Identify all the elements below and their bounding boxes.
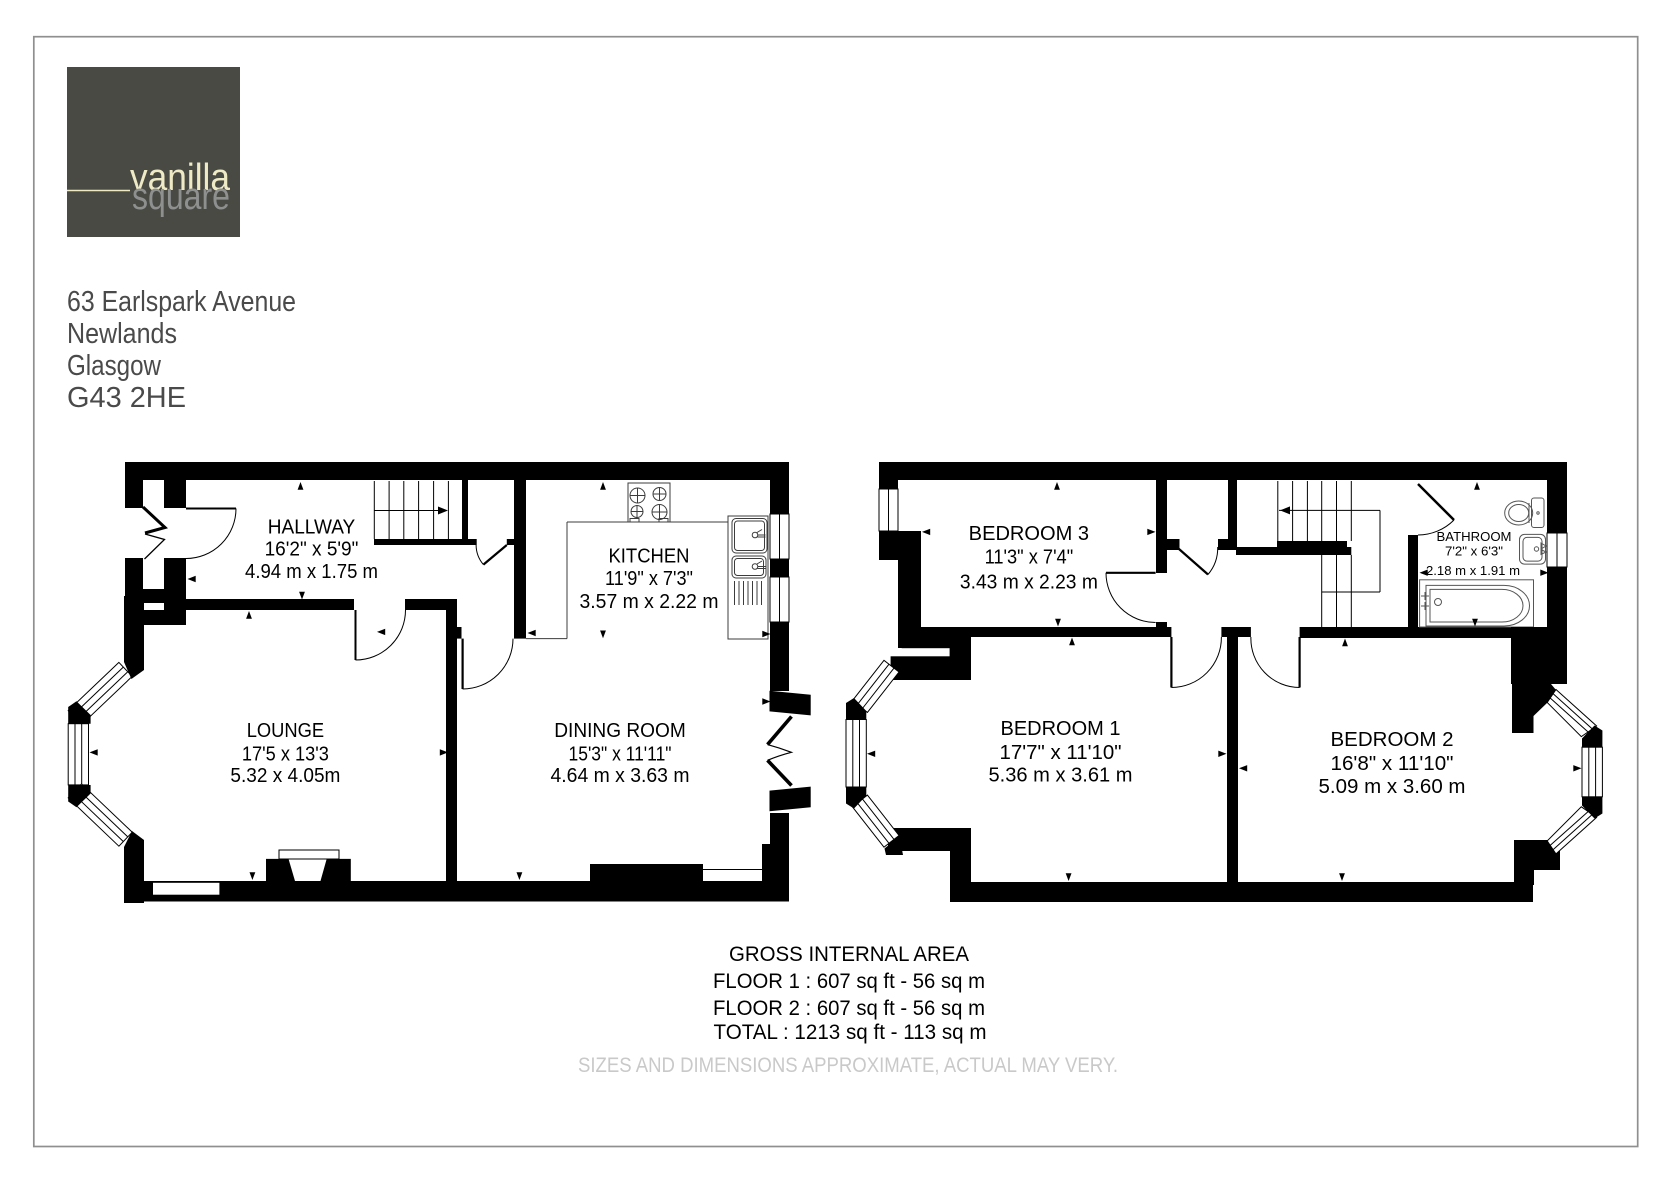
- svg-text:15'3" x 11'11": 15'3" x 11'11": [569, 744, 672, 766]
- svg-text:17'5 x 13'3: 17'5 x 13'3: [242, 744, 329, 766]
- svg-text:7'2" x 6'3": 7'2" x 6'3": [1445, 545, 1503, 559]
- svg-text:HALLWAY: HALLWAY: [268, 516, 356, 538]
- svg-text:BEDROOM 3: BEDROOM 3: [969, 523, 1089, 545]
- svg-text:Newlands: Newlands: [67, 318, 177, 350]
- svg-text:TOTAL : 1213 sq ft - 113 sq m: TOTAL : 1213 sq ft - 113 sq m: [714, 1021, 987, 1044]
- svg-text:16'8" x 11'10": 16'8" x 11'10": [1331, 753, 1454, 775]
- svg-text:DINING ROOM: DINING ROOM: [554, 720, 686, 742]
- svg-text:BEDROOM 2: BEDROOM 2: [1331, 729, 1454, 751]
- svg-text:11'3" x 7'4": 11'3" x 7'4": [985, 547, 1074, 569]
- svg-text:BATHROOM: BATHROOM: [1437, 530, 1512, 544]
- svg-text:LOUNGE: LOUNGE: [247, 720, 324, 742]
- svg-text:11'9" x 7'3": 11'9" x 7'3": [605, 568, 693, 590]
- svg-text:BEDROOM 1: BEDROOM 1: [1001, 718, 1121, 740]
- svg-text:2.18 m x 1.91 m: 2.18 m x 1.91 m: [1426, 564, 1520, 578]
- svg-text:63 Earlspark Avenue: 63 Earlspark Avenue: [67, 286, 296, 318]
- svg-text:FLOOR 2 : 607 sq ft - 56 sq m: FLOOR 2 : 607 sq ft - 56 sq m: [713, 997, 985, 1020]
- svg-text:4.94 m x 1.75 m: 4.94 m x 1.75 m: [245, 561, 378, 583]
- svg-text:5.32 x 4.05m: 5.32 x 4.05m: [230, 765, 340, 787]
- svg-text:5.36 m x 3.61 m: 5.36 m x 3.61 m: [989, 765, 1133, 787]
- svg-text:square: square: [132, 176, 230, 218]
- svg-text:G43 2HE: G43 2HE: [67, 382, 186, 414]
- svg-text:5.09 m x 3.60 m: 5.09 m x 3.60 m: [1319, 776, 1466, 798]
- svg-text:KITCHEN: KITCHEN: [609, 546, 690, 568]
- svg-text:16'2" x 5'9": 16'2" x 5'9": [265, 538, 359, 560]
- svg-text:3.57 m x 2.22 m: 3.57 m x 2.22 m: [580, 591, 719, 613]
- svg-text:SIZES AND DIMENSIONS APPROXIMA: SIZES AND DIMENSIONS APPROXIMATE, ACTUAL…: [578, 1054, 1118, 1077]
- svg-text:17'7" x 11'10": 17'7" x 11'10": [1000, 742, 1122, 764]
- svg-text:4.64 m x 3.63 m: 4.64 m x 3.63 m: [551, 765, 690, 787]
- svg-text:3.43 m x 2.23 m: 3.43 m x 2.23 m: [960, 572, 1098, 594]
- svg-text:Glasgow: Glasgow: [67, 350, 161, 382]
- svg-text:GROSS INTERNAL AREA: GROSS INTERNAL AREA: [729, 943, 969, 966]
- svg-text:FLOOR 1 : 607 sq ft - 56 sq m: FLOOR 1 : 607 sq ft - 56 sq m: [713, 970, 985, 993]
